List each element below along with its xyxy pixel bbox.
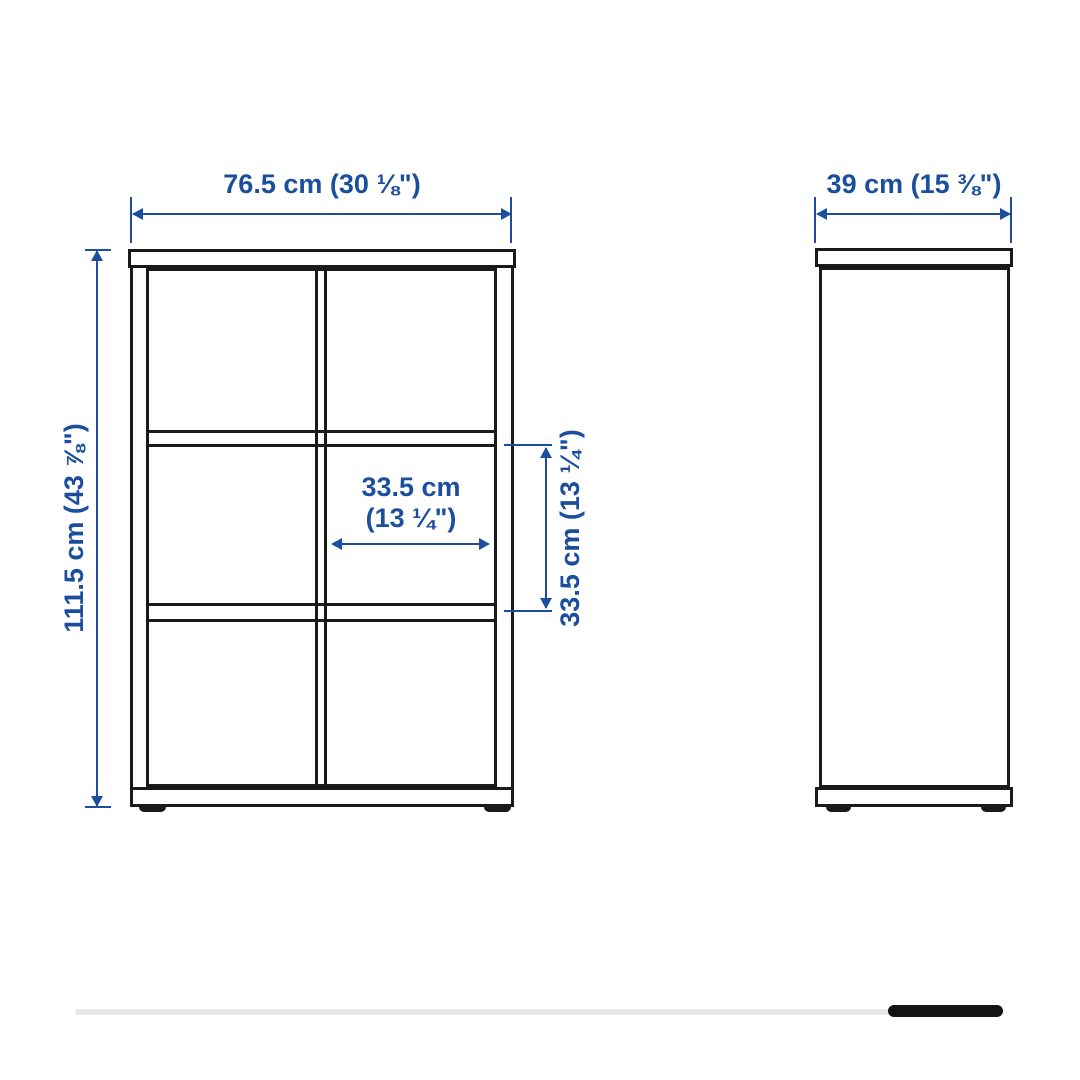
arrowhead-up-icon bbox=[91, 250, 103, 261]
side-top-cap bbox=[815, 248, 1013, 267]
front-height-label: 111.5 cm (43 ⅞") bbox=[59, 378, 89, 678]
arrowhead-right-icon bbox=[1000, 208, 1011, 220]
cell-height-label: 33.5 cm (13 ¼") bbox=[555, 378, 585, 678]
arrowhead-right-icon bbox=[501, 208, 512, 220]
side-bottom-rail bbox=[815, 787, 1013, 807]
front-shelf-divider-2 bbox=[149, 603, 494, 622]
extension-tick bbox=[510, 197, 512, 243]
dimension-line bbox=[545, 448, 547, 608]
product-dimension-diagram: 76.5 cm (30 ⅛") 39 cm (15 ⅜") 111.5 cm (… bbox=[0, 0, 1080, 1080]
arrowhead-left-icon bbox=[132, 208, 143, 220]
carousel-scrollbar-thumb[interactable] bbox=[888, 1005, 1003, 1017]
arrowhead-right-icon bbox=[479, 538, 490, 550]
front-bottom-rail bbox=[130, 787, 514, 807]
extension-tick bbox=[130, 197, 132, 243]
dimension-line bbox=[817, 213, 1011, 215]
extension-tick bbox=[814, 197, 816, 243]
dimension-line bbox=[96, 251, 98, 807]
carousel-scrollbar-track[interactable] bbox=[75, 1009, 1003, 1015]
arrowhead-left-icon bbox=[816, 208, 827, 220]
arrowhead-down-icon bbox=[91, 796, 103, 807]
extension-tick bbox=[1010, 197, 1012, 243]
dimension-line bbox=[333, 543, 488, 545]
front-top-cap bbox=[128, 249, 516, 268]
front-vertical-divider bbox=[315, 271, 327, 784]
cell-width-label-line1: 33.5 cm bbox=[331, 472, 491, 503]
front-width-label: 76.5 cm (30 ⅛") bbox=[132, 169, 512, 200]
dimension-line bbox=[133, 213, 511, 215]
cell-width-label-line2: (13 ¼") bbox=[331, 503, 491, 534]
arrowhead-down-icon bbox=[540, 598, 552, 609]
cell-width-label: 33.5 cm (13 ¼") bbox=[331, 472, 491, 534]
arrowhead-left-icon bbox=[331, 538, 342, 550]
extension-tick bbox=[504, 444, 552, 446]
extension-tick bbox=[504, 610, 552, 612]
front-shelf-divider-1 bbox=[149, 430, 494, 447]
arrowhead-up-icon bbox=[540, 447, 552, 458]
side-depth-label: 39 cm (15 ⅜") bbox=[810, 169, 1018, 200]
side-body bbox=[819, 267, 1010, 788]
